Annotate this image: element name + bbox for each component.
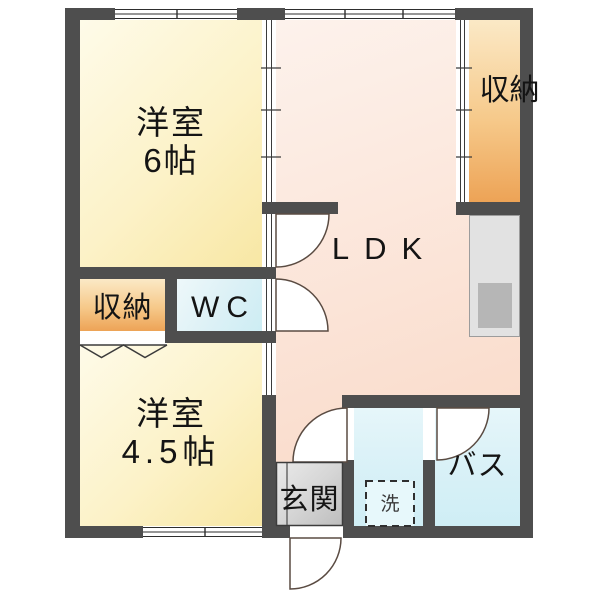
- label-washing-machine: 洗: [366, 494, 414, 516]
- door-swing-front-door: [290, 538, 341, 589]
- label-wc: WC: [177, 291, 262, 326]
- label-western-room-6: 洋室 6帖: [80, 104, 262, 180]
- western-room-6-name: 洋室: [80, 104, 262, 142]
- western-room-45-size: 4.5帖: [80, 433, 262, 471]
- door-swing-wc: [276, 279, 328, 331]
- label-closet-upper-right: 収納: [469, 73, 520, 108]
- door-swing-symbols: [276, 214, 489, 589]
- closet-upper-right-text: 収納: [480, 73, 510, 108]
- label-closet-left: 収納: [80, 292, 165, 325]
- kitchen-counter-outline: [470, 216, 520, 337]
- bifold-door-symbol: [80, 345, 167, 358]
- label-bath: バス: [435, 450, 520, 483]
- sliding-door-symbols: [261, 20, 472, 395]
- label-western-room-45: 洋室 4.5帖: [80, 395, 262, 471]
- floor-plan: 洋室 6帖 洋室 4.5帖 LDK 収納 収納 WC 玄関 バス 洗: [0, 0, 600, 600]
- door-swing-washroom: [293, 408, 347, 462]
- western-room-6-size: 6帖: [80, 142, 262, 180]
- label-entrance: 玄関: [276, 484, 343, 517]
- western-room-45-name: 洋室: [80, 395, 262, 433]
- label-ldk: LDK: [277, 231, 477, 267]
